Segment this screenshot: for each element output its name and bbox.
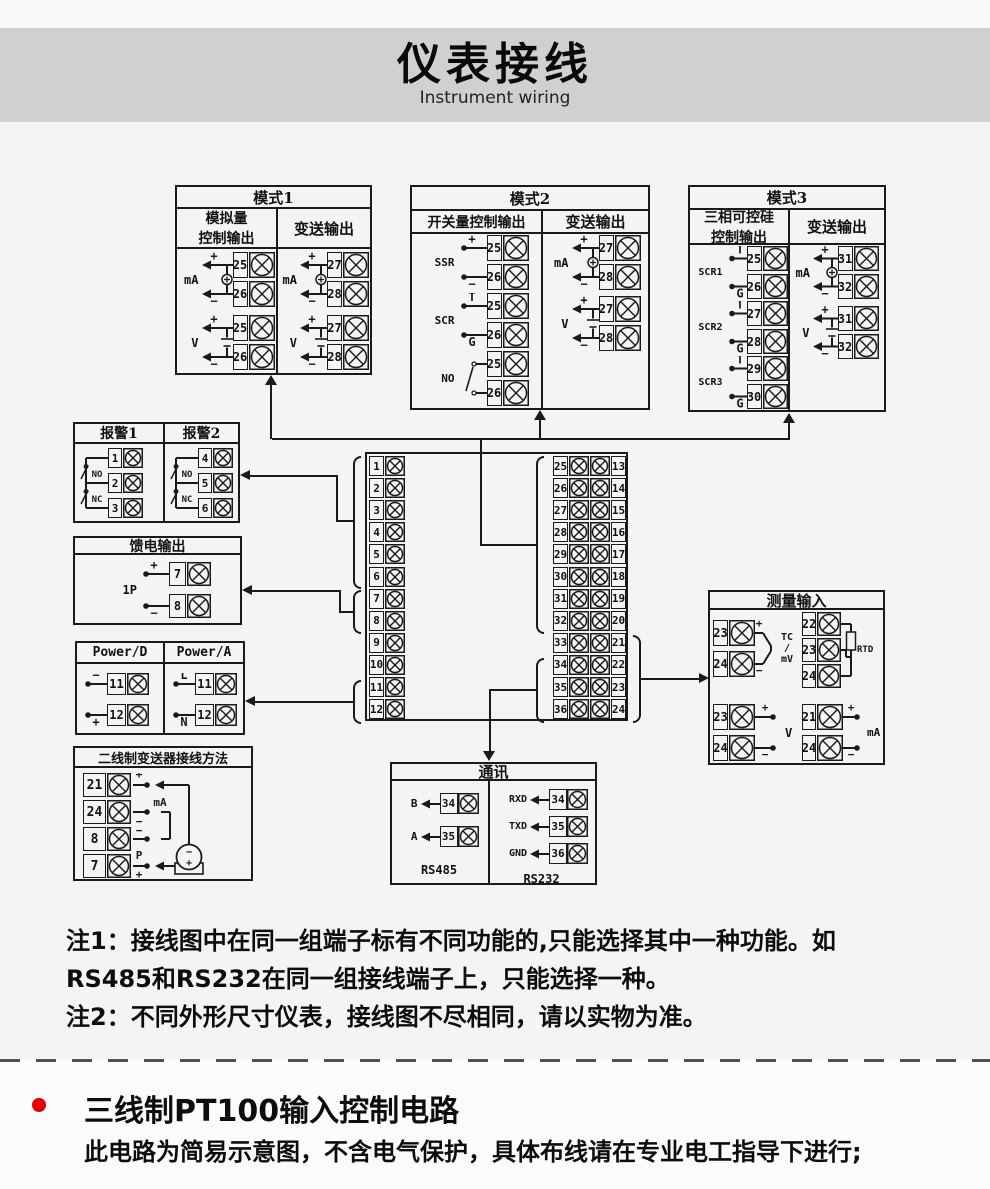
- feed-output-box: 馈电输出1P+−78: [73, 536, 242, 625]
- screw-terminal-icon: [503, 293, 529, 319]
- feed-label: 1P: [115, 583, 139, 597]
- svg-text:−: −: [92, 673, 99, 682]
- svg-text:+: +: [150, 562, 157, 572]
- terminal-stack: 2324: [713, 620, 755, 677]
- terminal-row: 12: [195, 704, 237, 726]
- v-input-group: 2324+−V: [713, 704, 799, 761]
- svg-text:G: G: [736, 287, 743, 300]
- terminal-number: 27: [553, 500, 568, 520]
- terminal-stack: 2728: [747, 301, 788, 354]
- wire-symbol: +−: [201, 315, 233, 370]
- terminal-row: 27: [327, 252, 369, 278]
- terminal-stack: 2526: [747, 246, 788, 299]
- tc-junction-symbol: +−: [755, 620, 777, 677]
- screw-terminal-icon: [503, 380, 529, 406]
- column-header: 模拟量控制输出: [177, 209, 276, 249]
- terminal-row: 27: [327, 315, 369, 341]
- terminal-number: 5: [198, 473, 212, 493]
- two-wire-transmitter-box: 二线制变送器接线方法212487+mA−−P+−+: [73, 746, 253, 881]
- terminal-number: 8: [169, 594, 186, 618]
- interface-label: RS232: [512, 872, 574, 886]
- svg-text:T: T: [736, 301, 743, 312]
- wiring-group-label: SSR: [425, 256, 457, 269]
- terminal-number: 26: [747, 274, 762, 299]
- svg-text:−: −: [821, 287, 828, 300]
- screw-terminal-icon: [590, 567, 610, 587]
- screw-terminal-icon: [213, 498, 233, 518]
- screw-terminal-icon: [763, 246, 788, 271]
- alarm-column: NONC123: [78, 448, 162, 518]
- terminal-stack: 2930: [747, 356, 788, 409]
- terminal-number: 8: [83, 827, 106, 851]
- screw-terminal-icon: [213, 448, 233, 468]
- wire-symbol: LN: [169, 673, 195, 726]
- rtd-resistor-symbol: [841, 612, 857, 688]
- terminal-row: 10: [369, 655, 405, 675]
- box-title: 二线制变送器接线方法: [75, 748, 251, 768]
- column-header-line: 控制输出: [199, 228, 255, 248]
- screw-terminal-icon: [385, 677, 405, 697]
- terminal-row: 24: [713, 735, 755, 761]
- terminal-number: 26: [487, 380, 502, 406]
- column-header: 报警1: [75, 424, 163, 444]
- terminal-number: 29: [747, 356, 762, 381]
- connector-line: [252, 590, 341, 592]
- screw-terminal-icon: [590, 456, 610, 476]
- column-header-line: 三相可控硅: [704, 207, 774, 227]
- screw-terminal-icon: [458, 793, 479, 814]
- power-column: LN1112: [169, 668, 249, 730]
- screw-terminal-icon: [567, 789, 588, 810]
- terminal-number: 22: [611, 655, 626, 675]
- terminal-number: 24: [802, 735, 816, 761]
- column-header-line: 模拟量: [206, 208, 248, 228]
- box-title: 通讯: [392, 764, 595, 781]
- screw-terminal-icon: [569, 544, 589, 564]
- screw-terminal-icon: [107, 800, 131, 824]
- signal-label: RXD: [497, 794, 529, 805]
- terminal-row: 6: [369, 567, 405, 587]
- wire-symbol: [457, 351, 487, 406]
- terminal-number: 23: [713, 620, 728, 646]
- svg-text:T: T: [468, 293, 475, 304]
- screw-terminal-icon: [854, 246, 879, 271]
- terminal-row: 32: [838, 274, 879, 299]
- arrowhead-left: [245, 696, 255, 706]
- screw-terminal-icon: [249, 281, 275, 307]
- wiring-column: mA+−3132V+−3132: [790, 245, 884, 410]
- wiring-group-label: mA: [279, 273, 299, 287]
- screw-terminal-icon: [123, 498, 143, 518]
- terminal-group-bracket: [536, 658, 544, 723]
- screw-terminal-icon: [385, 544, 405, 564]
- screw-terminal-icon: [215, 673, 237, 695]
- wiring-group-label: SCR2: [691, 322, 725, 333]
- wiring-group-label: mA: [551, 256, 571, 270]
- screw-terminal-icon: [107, 773, 131, 797]
- connector-line: [270, 384, 272, 439]
- wire-symbol: +−: [571, 235, 599, 290]
- screw-terminal-icon: [763, 274, 788, 299]
- terminal-number: 2: [108, 473, 122, 493]
- terminal-row: 2715: [553, 500, 626, 520]
- terminal-stack: 1112: [107, 673, 149, 726]
- comm-row: A35: [402, 826, 479, 847]
- terminal-number: 13: [611, 456, 626, 476]
- wiring-group-label: V: [551, 317, 571, 331]
- screw-terminal-icon: [249, 252, 275, 278]
- wire-symbol: +−: [571, 296, 599, 351]
- terminal-row: 25: [487, 293, 529, 319]
- terminal-number: 27: [747, 301, 762, 326]
- screw-terminal-icon: [215, 704, 237, 726]
- screw-terminal-icon: [458, 826, 479, 847]
- note-line-2: RS485和RS232在同一组接线端子上，只能选择一种。: [66, 960, 836, 998]
- terminal-row: 2917: [553, 544, 626, 564]
- tc-mv-group: 2324+−TC/mV: [713, 620, 799, 677]
- screw-terminal-icon: [817, 664, 841, 688]
- terminal-stack: 2728: [599, 296, 641, 351]
- terminal-row: 28: [747, 329, 788, 354]
- wire-symbol: TG: [457, 293, 487, 348]
- terminal-number: 6: [198, 498, 212, 518]
- terminal-number: 10: [369, 655, 384, 675]
- terminal-row: 3523: [553, 677, 626, 697]
- terminal-row: 4: [369, 522, 405, 542]
- screw-terminal-icon: [343, 344, 369, 370]
- connector-line: [337, 520, 354, 522]
- terminal-row: 3018: [553, 567, 626, 587]
- terminal-stack: 2526: [487, 235, 529, 290]
- screw-terminal-icon: [590, 633, 610, 653]
- terminal-number: 24: [802, 664, 816, 688]
- terminal-number: 28: [599, 264, 614, 290]
- screw-terminal-icon: [590, 677, 610, 697]
- terminal-row: 31: [838, 306, 879, 331]
- terminal-row: 8: [369, 611, 405, 631]
- wire-symbol: +−: [812, 306, 838, 359]
- signal-label: TXD: [497, 821, 529, 832]
- terminal-number: 23: [611, 677, 626, 697]
- screw-terminal-icon: [385, 611, 405, 631]
- wire-symbol: +−: [201, 252, 233, 307]
- terminal-number: 25: [747, 246, 762, 271]
- screw-terminal-icon: [590, 699, 610, 719]
- terminal-stack: 2526: [487, 293, 529, 348]
- svg-text:+: +: [580, 235, 587, 246]
- column-header-line: Power/A: [177, 645, 232, 660]
- terminal-number: 28: [327, 281, 342, 307]
- relay-contact-symbol: NONC: [168, 448, 198, 518]
- screw-terminal-icon: [567, 816, 588, 837]
- svg-text:NC: NC: [92, 495, 103, 505]
- comm-row: TXD35: [497, 816, 588, 837]
- screw-terminal-icon: [569, 611, 589, 631]
- column-header-line: 变送输出: [807, 216, 867, 237]
- tc-mv-label-line: TC: [777, 632, 799, 643]
- section-subtext: 此电路为简易示意图，不含电气保护，具体布线请在专业电工指导下进行;: [84, 1132, 862, 1167]
- svg-text:NO: NO: [182, 470, 193, 480]
- terminal-number: 23: [713, 704, 728, 730]
- wiring-group: V+−2728: [551, 296, 641, 351]
- terminal-number: 32: [838, 334, 853, 359]
- connector-line: [336, 476, 338, 522]
- screw-terminal-icon: [249, 315, 275, 341]
- alarm-box: 报警1报警2NONC123NONC456: [73, 422, 240, 523]
- screw-terminal-icon: [385, 655, 405, 675]
- column-header: 三相可控硅控制输出: [690, 210, 788, 245]
- instrument-wiring-page: 仪表接线 Instrument wiring 模式1模拟量控制输出变送输出mA+…: [0, 0, 990, 1189]
- arrow-wire-symbol: [529, 790, 549, 810]
- terminal-row: 26: [233, 344, 275, 370]
- terminal-number: 30: [553, 567, 568, 587]
- mode1-box: 模式1模拟量控制输出变送输出mA+−2526V+−2526mA+−2728V+−…: [175, 185, 372, 375]
- column-header: 变送输出: [543, 211, 648, 234]
- power-column: −+1112: [81, 668, 161, 730]
- column-header-line: 控制输出: [711, 227, 767, 247]
- terminal-row: 26: [233, 281, 275, 307]
- screw-terminal-icon: [385, 633, 405, 653]
- comm-row: RXD34: [497, 789, 588, 810]
- column-header: Power/A: [165, 643, 243, 664]
- terminal-stack: 456: [198, 448, 233, 518]
- terminal-row: 2614: [553, 478, 626, 498]
- terminal-number: 34: [553, 655, 568, 675]
- terminal-number: 25: [553, 456, 568, 476]
- screw-terminal-icon: [615, 264, 641, 290]
- wire-symbol: TG: [725, 301, 747, 354]
- terminal-number: 31: [838, 306, 853, 331]
- screw-terminal-icon: [615, 325, 641, 351]
- terminal-row: 29: [747, 356, 788, 381]
- svg-text:−: −: [150, 606, 157, 618]
- svg-text:−: −: [756, 664, 763, 677]
- arrow-wire-symbol: [529, 817, 549, 837]
- box-title: 模式2: [412, 187, 648, 211]
- screw-terminal-icon: [763, 329, 788, 354]
- terminal-number: 32: [838, 274, 853, 299]
- svg-text:G: G: [736, 397, 743, 410]
- transmitter-wiring-symbol: +mA−−P+−+: [133, 773, 245, 879]
- screw-terminal-icon: [817, 612, 841, 636]
- wiring-group: SCR3TG2930: [691, 356, 788, 409]
- svg-text:+: +: [308, 315, 315, 326]
- terminal-number: 35: [549, 816, 567, 837]
- svg-text:L: L: [180, 673, 187, 682]
- terminal-number: 22: [802, 612, 816, 636]
- svg-text:T: T: [736, 246, 743, 257]
- wiring-group-label: SCR1: [691, 267, 725, 278]
- rtd-group: 222324RTD: [802, 612, 881, 688]
- signal-label: GND: [497, 848, 529, 859]
- screw-terminal-icon: [187, 562, 211, 586]
- screw-terminal-icon: [569, 633, 589, 653]
- terminal-number: 1: [369, 456, 384, 476]
- terminal-row: 5: [198, 473, 233, 493]
- arrow-wire-symbol: [529, 844, 549, 864]
- wiring-column: mA+−2728V+−2728: [278, 249, 370, 373]
- svg-text:+: +: [821, 306, 828, 317]
- screw-terminal-icon: [127, 704, 149, 726]
- box-title: 模式1: [177, 187, 370, 209]
- signal-label: B: [402, 797, 420, 810]
- mode2-box: 模式2开关量控制输出变送输出SSR+−2526SCRTG2526NO2526mA…: [410, 185, 650, 410]
- terminal-row: 8: [83, 827, 131, 851]
- terminal-number: 29: [553, 544, 568, 564]
- svg-text:G: G: [468, 335, 475, 348]
- wire-symbol: +−: [457, 235, 487, 290]
- terminal-row: 3: [369, 500, 405, 520]
- terminal-number: 28: [327, 344, 342, 370]
- wiring-group-label: mA: [179, 273, 201, 287]
- screw-terminal-icon: [569, 500, 589, 520]
- terminal-group-bracket: [353, 590, 361, 634]
- svg-text:+: +: [136, 868, 143, 879]
- terminal-stack: 78: [169, 562, 211, 618]
- terminal-row: 2: [108, 473, 143, 493]
- wiring-column: SSR+−2526SCRTG2526NO2526: [412, 234, 541, 408]
- wiring-group: V+−3132: [796, 306, 879, 359]
- terminal-stack: 2728: [599, 235, 641, 290]
- tc-mv-label-line: mV: [777, 654, 799, 665]
- screw-terminal-icon: [127, 673, 149, 695]
- terminal-number: 28: [599, 325, 614, 351]
- screw-terminal-icon: [729, 735, 755, 761]
- terminal-row: 26: [747, 274, 788, 299]
- svg-text:+: +: [210, 252, 217, 263]
- terminal-group-bracket: [353, 456, 361, 589]
- terminal-stack: 2526: [233, 252, 275, 307]
- terminal-number: 4: [369, 522, 384, 542]
- svg-text:N: N: [180, 715, 187, 726]
- red-bullet-icon: [32, 1098, 46, 1112]
- terminal-number: 7: [169, 562, 186, 586]
- screw-terminal-icon: [854, 274, 879, 299]
- terminal-number: 26: [233, 344, 248, 370]
- terminal-group-bracket: [633, 635, 641, 723]
- wiring-group-label: V: [279, 336, 299, 350]
- wire-symbol: TG: [725, 356, 747, 409]
- screw-terminal-icon: [123, 473, 143, 493]
- svg-text:−: −: [308, 357, 315, 370]
- interface-label: RS485: [409, 863, 471, 877]
- wiring-group-label: mA: [796, 266, 812, 280]
- wiring-group: NO2526: [425, 351, 529, 406]
- terminal-row: 28: [599, 264, 641, 290]
- terminal-stack: 2526: [233, 315, 275, 370]
- terminal-number: 25: [233, 315, 248, 341]
- svg-text:T: T: [736, 356, 743, 367]
- terminal-number: 27: [599, 296, 614, 322]
- screw-terminal-icon: [249, 344, 275, 370]
- terminal-row: 22: [802, 612, 841, 636]
- wiring-group-label: NO: [425, 372, 457, 385]
- screw-terminal-icon: [590, 589, 610, 609]
- terminal-row: 11: [195, 673, 237, 695]
- arrowhead-right: [699, 673, 709, 683]
- svg-text:−: −: [580, 277, 587, 290]
- connector-line: [340, 611, 354, 613]
- svg-text:−: −: [580, 338, 587, 351]
- terminal-number: 25: [487, 351, 502, 377]
- terminal-row: 8: [169, 594, 211, 618]
- screw-terminal-icon: [107, 854, 131, 878]
- terminal-group-bracket: [536, 456, 544, 634]
- terminal-number: 34: [549, 789, 567, 810]
- v-wires-symbol: +−: [755, 704, 785, 761]
- terminal-number: 18: [611, 567, 626, 587]
- column-divider: [163, 424, 165, 521]
- connector-line: [480, 544, 538, 546]
- connector-line: [250, 475, 338, 477]
- screw-terminal-icon: [385, 567, 405, 587]
- terminal-row: 21: [83, 773, 131, 797]
- screw-terminal-icon: [569, 655, 589, 675]
- terminal-number: 31: [553, 589, 568, 609]
- screw-terminal-icon: [385, 500, 405, 520]
- screw-terminal-icon: [817, 638, 841, 662]
- terminal-number: 31: [838, 246, 853, 271]
- connector-line: [539, 419, 541, 439]
- wiring-group-label: V: [179, 336, 201, 350]
- screw-terminal-icon: [569, 522, 589, 542]
- terminal-row: 25: [233, 252, 275, 278]
- screw-terminal-icon: [763, 356, 788, 381]
- terminal-row: 27: [599, 235, 641, 261]
- svg-text:G: G: [736, 342, 743, 355]
- terminal-number: 1: [108, 448, 122, 468]
- terminal-row: 7: [369, 589, 405, 609]
- svg-text:−: −: [210, 357, 217, 370]
- terminal-stack: 2728: [327, 252, 369, 307]
- terminal-number: 26: [487, 264, 502, 290]
- terminal-stack: 2526: [487, 351, 529, 406]
- signal-label: A: [402, 830, 420, 843]
- screw-terminal-icon: [854, 334, 879, 359]
- screw-terminal-icon: [569, 567, 589, 587]
- arrowhead-left: [242, 585, 252, 595]
- terminal-row: 28: [327, 281, 369, 307]
- power-box: Power/DPower/A−+1112LN1112: [75, 641, 245, 735]
- screw-terminal-icon: [343, 315, 369, 341]
- connector-line: [255, 701, 354, 703]
- connector-line: [788, 422, 790, 439]
- rs485-column: B34A35RS485: [392, 781, 488, 883]
- screw-terminal-icon: [503, 322, 529, 348]
- terminal-number: 11: [107, 673, 126, 695]
- wire-symbol: +−: [299, 315, 327, 370]
- terminal-row: 24: [802, 735, 843, 761]
- arrowhead-left: [240, 470, 250, 480]
- terminal-number: 27: [599, 235, 614, 261]
- screw-terminal-icon: [385, 699, 405, 719]
- terminal-number: 12: [195, 704, 214, 726]
- screw-terminal-icon: [569, 456, 589, 476]
- ma-label: mA: [867, 726, 887, 739]
- tc-mv-label-line: /: [777, 643, 799, 654]
- measurement-input-box: 测量输入2324+−TC/mV222324RTD2324+−V2124+−mA: [708, 590, 885, 765]
- terminal-row: 31: [838, 246, 879, 271]
- terminal-number: 17: [611, 544, 626, 564]
- screw-terminal-icon: [615, 296, 641, 322]
- column-header-line: 变送输出: [565, 211, 625, 232]
- svg-text:+: +: [186, 858, 192, 869]
- terminal-stack: 2124: [802, 704, 843, 761]
- terminal-stack: 1112: [195, 673, 237, 726]
- terminal-number: 7: [83, 854, 106, 878]
- screw-terminal-icon: [817, 735, 843, 761]
- screw-terminal-icon: [107, 827, 131, 851]
